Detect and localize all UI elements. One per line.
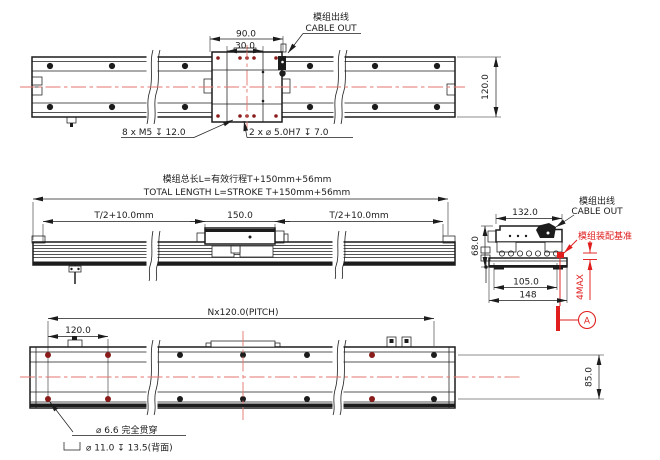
note-through-label: ⌀ 6.6 完全贯穿 [96,424,157,436]
leader-line [564,240,577,253]
dim-120-label: 120.0 [65,326,91,336]
counterbore-icon [64,442,80,450]
datum-note-label: 模组装配基准 [578,230,632,242]
bottom-view: Nx120.0(PITCH) 120.0 [20,308,604,454]
limit-sensor [69,265,81,284]
note-pin-label: 2 x ⌀ 5.0H7 ↧ 7.0 [249,128,329,138]
dim-105-label: 105.0 [513,278,539,288]
dim-left-label: T/2+10.0mm [93,211,153,221]
sensor-tab [68,340,82,347]
dim-30-label: 30.0 [235,42,255,52]
cable-out-label-en: CABLE OUT [305,24,357,34]
clearance-dimension: 4MAX [576,241,597,300]
dim-pitch-label: Nx120.0(PITCH) [208,308,279,318]
dim-120-label: 120.0 [481,74,491,100]
end-notch [447,84,455,95]
counterbore-notes: ⌀ 6.6 完全贯穿 ⌀ 11.0 ↧ 13.5(背面) [50,402,186,454]
section-dimensions-top: 132.0 [496,208,562,224]
end-notch [32,87,42,95]
section-view: 132.0 模组出线 [471,195,632,331]
side-view-carriage [197,228,288,257]
clearance-label: 4MAX [576,274,586,300]
linear-module-drawing: 90.0 30.0 120.0 模组出线 CABLE OUT 8 x M5 ↧ … [0,0,660,460]
dim-132-label: 132.0 [512,208,538,218]
total-length-cn: 模组总长L=有效行程T+150mm+56mm [163,173,332,185]
sensor-tab [67,117,76,123]
guide-block [545,242,562,252]
datum-corner-mark [557,252,564,258]
sensor-pin [70,123,73,127]
guide-block [497,242,516,252]
cable-out-callout-top: 模组出线 CABLE OUT [288,11,361,53]
note-cbore-label: ⌀ 11.0 ↧ 13.5(背面) [86,442,173,454]
cable-out-label-cn: 模组出线 [313,11,349,23]
note-tap-label: 8 x M5 ↧ 12.0 [122,128,186,138]
dim-148-label: 148 [519,291,536,301]
carriage-side-tab [204,79,212,93]
cable-out-label-cn: 模组出线 [579,195,615,207]
leader-line [556,215,574,227]
datum-target-bar [556,306,560,331]
dim-right-label: T/2+10.0mm [328,211,388,221]
datum-callout: 模组装配基准 A [556,230,632,331]
dim-68-label: 68.0 [471,236,481,256]
datum-label: A [584,317,591,327]
top-view: 90.0 30.0 120.0 模组出线 CABLE OUT 8 x M5 ↧ … [20,11,501,138]
cable-out-label-en: CABLE OUT [571,207,623,217]
end-notch [32,77,42,85]
side-view: 模组总长L=有效行程T+150mm+56mm TOTAL LENGTH L=ST… [32,173,455,284]
total-length-en: TOTAL LENGTH L=STROKE T+150mm+56mm [143,188,350,198]
dim-center-label: 150.0 [227,211,253,221]
dim-85-label: 85.0 [585,367,595,387]
carriage-side-tab [282,79,290,93]
cable-connector-pin [281,44,286,52]
leader-line [288,34,303,54]
cable-out-callout-section: 模组出线 CABLE OUT [556,195,623,227]
dim-90-label: 90.0 [236,30,256,40]
